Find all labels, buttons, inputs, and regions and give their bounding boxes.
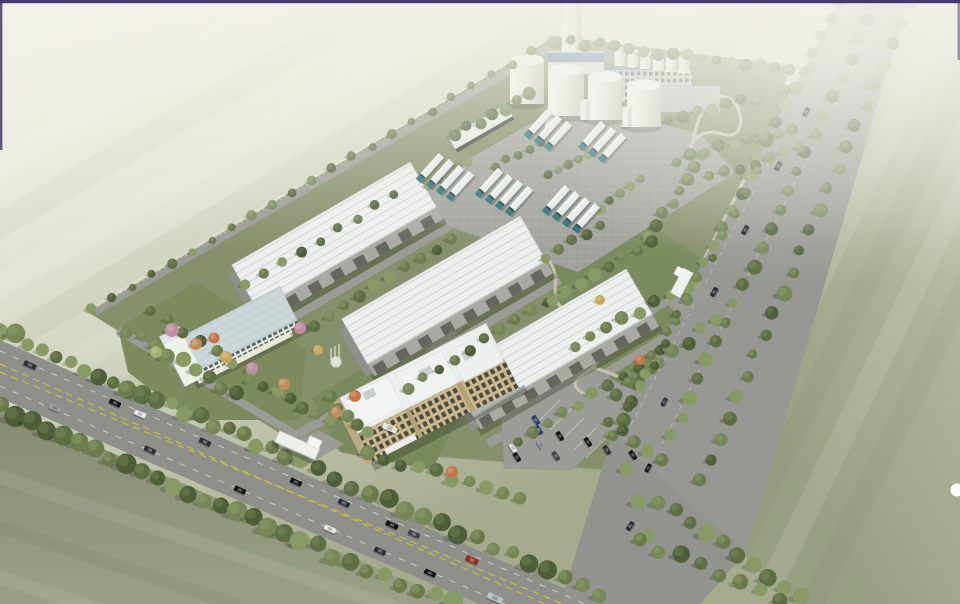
aerial-rendering [0,0,960,604]
site-plan-rendering [0,0,960,604]
corner-haze [540,0,960,280]
top-border [0,0,960,3]
left-border [0,0,2,150]
